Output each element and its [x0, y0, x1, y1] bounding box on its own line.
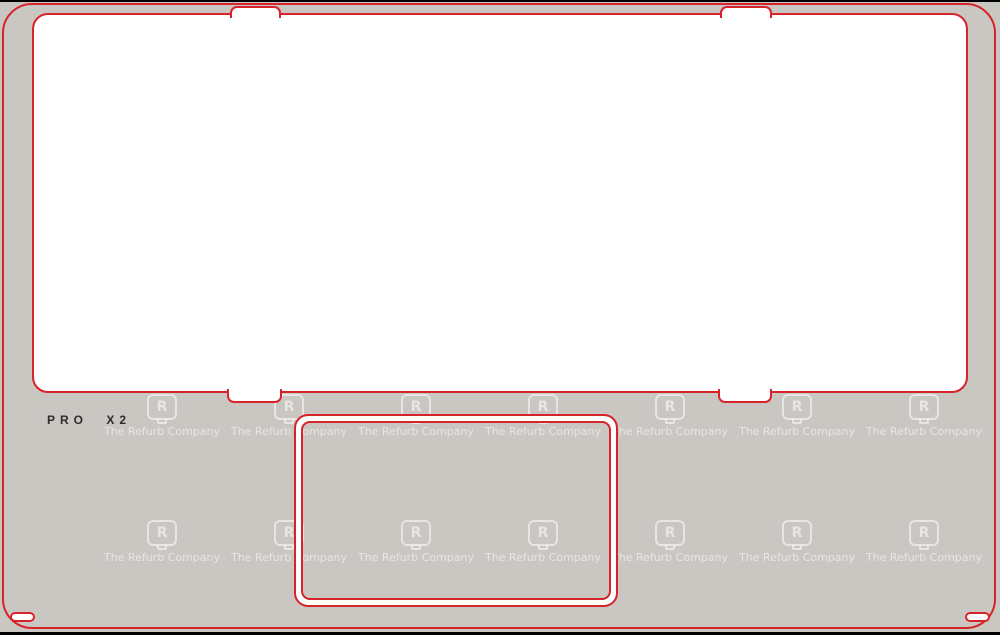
refurb-logo-icon: R — [147, 520, 177, 546]
trackpad-cut-outline-inner — [301, 421, 611, 600]
watermark: R The Refurb Company — [610, 520, 730, 564]
refurb-logo-icon: R — [909, 394, 939, 420]
refurb-logo-letter: R — [665, 526, 676, 540]
refurb-logo-lug — [157, 419, 167, 424]
watermark-text: The Refurb Company — [739, 425, 855, 438]
refurb-logo-icon: R — [909, 520, 939, 546]
refurb-logo-letter: R — [411, 400, 422, 414]
refurb-logo-lug — [284, 545, 294, 550]
watermark-text: The Refurb Company — [866, 551, 982, 564]
top-letterbox-bar — [0, 0, 1000, 2]
refurb-logo-letter: R — [284, 526, 295, 540]
refurb-logo-letter: R — [157, 526, 168, 540]
refurb-logo-lug — [665, 419, 675, 424]
refurb-logo-lug — [919, 545, 929, 550]
watermark-text: The Refurb Company — [612, 425, 728, 438]
refurb-logo-lug — [284, 419, 294, 424]
keyboard-tab-top-left — [230, 6, 281, 18]
keyboard-cutout-panel — [32, 13, 968, 393]
watermark: R The Refurb Company — [864, 520, 984, 564]
watermark-text: The Refurb Company — [612, 551, 728, 564]
corner-slot-left — [10, 612, 35, 622]
refurb-logo-letter: R — [665, 400, 676, 414]
watermark-text: The Refurb Company — [866, 425, 982, 438]
refurb-logo-lug — [157, 545, 167, 550]
watermark: R The Refurb Company — [737, 520, 857, 564]
keyboard-tab-bottom-right — [718, 389, 772, 403]
keyboard-tab-bottom-left — [227, 389, 282, 403]
watermark: R The Refurb Company — [864, 394, 984, 438]
watermark: R The Refurb Company — [102, 520, 222, 564]
watermark-text: The Refurb Company — [739, 551, 855, 564]
refurb-logo-letter: R — [538, 400, 549, 414]
watermark-text: The Refurb Company — [104, 551, 220, 564]
refurb-logo-letter: R — [792, 526, 803, 540]
model-label: PRO X2 — [47, 413, 131, 427]
skin-cut-template-image: R The Refurb Company R The Refurb Compan… — [0, 0, 1000, 635]
refurb-logo-letter: R — [157, 400, 168, 414]
refurb-logo-lug — [665, 545, 675, 550]
refurb-logo-letter: R — [919, 526, 930, 540]
refurb-logo-lug — [792, 545, 802, 550]
refurb-logo-lug — [919, 419, 929, 424]
watermark: R The Refurb Company — [610, 394, 730, 438]
keyboard-tab-top-right — [720, 6, 772, 18]
refurb-logo-icon: R — [782, 520, 812, 546]
refurb-logo-lug — [792, 419, 802, 424]
refurb-logo-icon: R — [147, 394, 177, 420]
refurb-logo-icon: R — [655, 394, 685, 420]
refurb-logo-icon: R — [655, 520, 685, 546]
corner-slot-right — [965, 612, 990, 622]
refurb-logo-letter: R — [284, 400, 295, 414]
refurb-logo-icon: R — [782, 394, 812, 420]
refurb-logo-letter: R — [919, 400, 930, 414]
refurb-logo-letter: R — [792, 400, 803, 414]
